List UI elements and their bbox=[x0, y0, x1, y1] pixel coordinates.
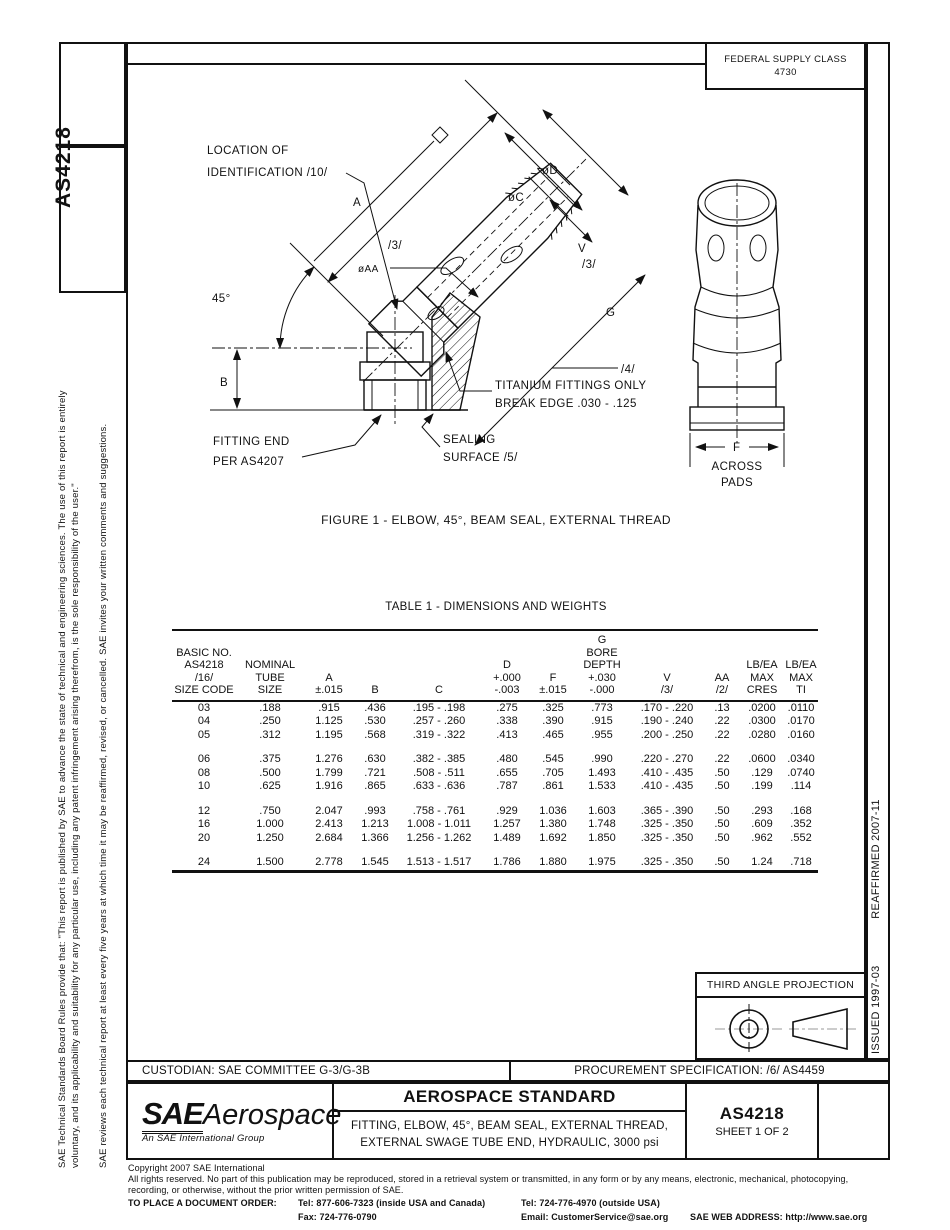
dim-a-label: A bbox=[353, 197, 361, 209]
document-page: FEDERAL SUPPLY CLASS 4730 AS4218 SAE Tec… bbox=[0, 0, 950, 1230]
dia-c-label: øC bbox=[508, 192, 524, 204]
table-cell: 1.880 bbox=[532, 845, 574, 871]
table-cell: .114 bbox=[784, 780, 818, 794]
table-cell: .465 bbox=[532, 729, 574, 743]
flag-3b-label: /3/ bbox=[582, 259, 596, 271]
table-cell: .861 bbox=[532, 780, 574, 794]
table-cell: 08 bbox=[172, 767, 236, 781]
doc-number-text: AS4218 bbox=[720, 1104, 784, 1124]
table-cell: .325 - .350 bbox=[630, 845, 704, 871]
table-cell: .410 - .435 bbox=[630, 780, 704, 794]
table-cell: .250 bbox=[236, 715, 304, 729]
col-header-lbea-cres: LB/EA MAX CRES bbox=[740, 630, 784, 701]
angle-45-label: 45° bbox=[212, 293, 231, 305]
table-cell: .170 - .220 bbox=[630, 701, 704, 716]
across-line1: ACROSS bbox=[712, 461, 763, 473]
reaffirmed-text: REAFFIRMED 2007-11 bbox=[870, 799, 882, 919]
table-row: 201.2502.6841.3661.256 - 1.2621.4891.692… bbox=[172, 832, 818, 846]
table-cell: .500 bbox=[236, 767, 304, 781]
across-line2: PADS bbox=[721, 477, 753, 489]
procurement-text: PROCUREMENT SPECIFICATION: /6/ AS4459 bbox=[511, 1062, 888, 1080]
table-cell: .168 bbox=[784, 794, 818, 819]
fitting-end-line1: FITTING END bbox=[213, 436, 290, 448]
table-cell: .50 bbox=[704, 794, 740, 819]
table-row: 05.3121.195.568.319 - .322.413.465.955.2… bbox=[172, 729, 818, 743]
table-cell: 1.692 bbox=[532, 832, 574, 846]
table-cell: .325 bbox=[532, 701, 574, 716]
sealing-cut-hatch bbox=[432, 293, 480, 410]
table-row: 03.188.915.436.195 - .198.275.325.773.17… bbox=[172, 701, 818, 716]
table-cell: .955 bbox=[574, 729, 630, 743]
table-cell: .0280 bbox=[740, 729, 784, 743]
table-cell: .758 - .761 bbox=[396, 794, 482, 819]
table-title: TABLE 1 - DIMENSIONS AND WEIGHTS bbox=[126, 601, 866, 613]
table-cell: 1.125 bbox=[304, 715, 354, 729]
table-cell: .129 bbox=[740, 767, 784, 781]
col-header-v: V /3/ bbox=[630, 630, 704, 701]
standard-title-line2: EXTERNAL SWAGE TUBE END, HYDRAULIC, 3000… bbox=[334, 1135, 685, 1152]
table-cell: .0340 bbox=[784, 742, 818, 767]
table-cell: 12 bbox=[172, 794, 236, 819]
table-cell: .787 bbox=[482, 780, 532, 794]
table-cell: .50 bbox=[704, 767, 740, 781]
table-cell: .375 bbox=[236, 742, 304, 767]
table-cell: .0300 bbox=[740, 715, 784, 729]
figure1-drawing: 45° B A /3/ LOCATION OF IDENTIFICATION /… bbox=[150, 55, 870, 520]
table-cell: 1.786 bbox=[482, 845, 532, 871]
dia-d-label: øD bbox=[542, 165, 558, 177]
table-cell: .50 bbox=[704, 818, 740, 832]
copyright-line3: recording, or otherwise, without the pri… bbox=[128, 1185, 918, 1196]
table-cell: 1.000 bbox=[236, 818, 304, 832]
location-id-line1: LOCATION OF bbox=[207, 145, 289, 157]
table-cell: .257 - .260 bbox=[396, 715, 482, 729]
sealing-line2: SURFACE /5/ bbox=[443, 452, 518, 464]
col-header-a: A ±.015 bbox=[304, 630, 354, 701]
table-cell: .50 bbox=[704, 845, 740, 871]
table-row: 10.6251.916.865.633 - .636.787.8611.533.… bbox=[172, 780, 818, 794]
table-cell: 1.256 - 1.262 bbox=[396, 832, 482, 846]
table-cell: .0170 bbox=[784, 715, 818, 729]
table-cell: .22 bbox=[704, 715, 740, 729]
col-header-d: D +.000 -.003 bbox=[482, 630, 532, 701]
titanium-line1: TITANIUM FITTINGS ONLY bbox=[495, 380, 646, 392]
table-cell: 1.008 - 1.011 bbox=[396, 818, 482, 832]
dimensions-table: BASIC NO. AS4218 /16/ SIZE CODE NOMINAL … bbox=[172, 629, 818, 873]
standard-title-line1: FITTING, ELBOW, 45°, BEAM SEAL, EXTERNAL… bbox=[334, 1118, 685, 1135]
table-cell: .990 bbox=[574, 742, 630, 767]
table-cell: 1.500 bbox=[236, 845, 304, 871]
table-cell: 1.489 bbox=[482, 832, 532, 846]
table-cell: .480 bbox=[482, 742, 532, 767]
table-cell: 16 bbox=[172, 818, 236, 832]
table-cell: 1.850 bbox=[574, 832, 630, 846]
table-cell: .325 - .350 bbox=[630, 818, 704, 832]
table-cell: .750 bbox=[236, 794, 304, 819]
table-body: 03.188.915.436.195 - .198.275.325.773.17… bbox=[172, 701, 818, 872]
table-cell: .22 bbox=[704, 729, 740, 743]
table-cell: .352 bbox=[784, 818, 818, 832]
fax-number: Fax: 724-776-0790 bbox=[298, 1212, 377, 1223]
table-cell: 1.366 bbox=[354, 832, 396, 846]
table-cell: .568 bbox=[354, 729, 396, 743]
table-cell: .0160 bbox=[784, 729, 818, 743]
sae-logo-tagline: An SAE International Group bbox=[142, 1133, 341, 1144]
table-cell: 1.250 bbox=[236, 832, 304, 846]
copyright-block: Copyright 2007 SAE International All rig… bbox=[128, 1163, 918, 1226]
table-cell: .200 - .250 bbox=[630, 729, 704, 743]
tel-outside: Tel: 724-776-4970 (outside USA) bbox=[521, 1198, 660, 1209]
table-cell: 1.603 bbox=[574, 794, 630, 819]
table-cell: .530 bbox=[354, 715, 396, 729]
table-cell: 10 bbox=[172, 780, 236, 794]
table-cell: .365 - .390 bbox=[630, 794, 704, 819]
table-cell: .275 bbox=[482, 701, 532, 716]
table-cell: 1.975 bbox=[574, 845, 630, 871]
dim-b-label: B bbox=[220, 377, 228, 389]
disclaimer-line2: voluntary, and its applicability and sui… bbox=[69, 306, 82, 1168]
col-header-c: C bbox=[396, 630, 482, 701]
sae-aerospace-logo: SAEAerospace An SAE International Group bbox=[142, 1096, 341, 1144]
table-cell: .962 bbox=[740, 832, 784, 846]
custodian-text: CUSTODIAN: SAE COMMITTEE G-3/G-3B bbox=[128, 1062, 511, 1080]
standard-title-cell: AEROSPACE STANDARD FITTING, ELBOW, 45°, … bbox=[332, 1084, 687, 1158]
dia-aa-label: øAA bbox=[358, 264, 379, 275]
table-row: 12.7502.047.993.758 - .761.9291.0361.603… bbox=[172, 794, 818, 819]
table-cell: .22 bbox=[704, 742, 740, 767]
standard-type-heading: AEROSPACE STANDARD bbox=[334, 1084, 685, 1112]
table-cell: .705 bbox=[532, 767, 574, 781]
table-cell: .655 bbox=[482, 767, 532, 781]
table-cell: .195 - .198 bbox=[396, 701, 482, 716]
table-cell: .865 bbox=[354, 780, 396, 794]
flag-4-label: /4/ bbox=[621, 364, 635, 376]
table-cell: .312 bbox=[236, 729, 304, 743]
doc-number-box: AS4218 bbox=[59, 146, 126, 293]
col-header-g: G BORE DEPTH +.030 -.000 bbox=[574, 630, 630, 701]
table-cell: 1.213 bbox=[354, 818, 396, 832]
disclaimer-line1: SAE Technical Standards Board Rules prov… bbox=[56, 306, 69, 1168]
table-cell: 1.916 bbox=[304, 780, 354, 794]
fitting-end-line2: PER AS4207 bbox=[213, 456, 284, 468]
col-header-f: F ±.015 bbox=[532, 630, 574, 701]
table-cell: .436 bbox=[354, 701, 396, 716]
table-cell: .0110 bbox=[784, 701, 818, 716]
figure-caption: FIGURE 1 - ELBOW, 45°, BEAM SEAL, EXTERN… bbox=[126, 513, 866, 527]
table-cell: .545 bbox=[532, 742, 574, 767]
table-cell: 1.545 bbox=[354, 845, 396, 871]
table-cell: 2.684 bbox=[304, 832, 354, 846]
web-address: SAE WEB ADDRESS: http://www.sae.org bbox=[690, 1212, 867, 1223]
table-cell: 1.24 bbox=[740, 845, 784, 871]
table-cell: .220 - .270 bbox=[630, 742, 704, 767]
table-cell: 1.036 bbox=[532, 794, 574, 819]
disclaimer-text: SAE Technical Standards Board Rules prov… bbox=[56, 306, 82, 1168]
table-cell: 2.047 bbox=[304, 794, 354, 819]
third-angle-projection-title: THIRD ANGLE PROJECTION bbox=[697, 974, 864, 998]
table-cell: 1.195 bbox=[304, 729, 354, 743]
sae-logo-cell: SAEAerospace An SAE International Group bbox=[128, 1084, 332, 1158]
table-cell: 24 bbox=[172, 845, 236, 871]
copyright-line1: Copyright 2007 SAE International bbox=[128, 1163, 918, 1174]
dim-g-label: G bbox=[606, 307, 615, 319]
table-cell: .915 bbox=[304, 701, 354, 716]
side-view: F ACROSS PADS bbox=[690, 180, 784, 489]
table-cell: 04 bbox=[172, 715, 236, 729]
table-cell: .50 bbox=[704, 832, 740, 846]
table-row: 241.5002.7781.5451.513 - 1.5171.7861.880… bbox=[172, 845, 818, 871]
col-header-tube-size: NOMINAL TUBE SIZE bbox=[236, 630, 304, 701]
col-header-size-code: BASIC NO. AS4218 /16/ SIZE CODE bbox=[172, 630, 236, 701]
table-cell: .382 - .385 bbox=[396, 742, 482, 767]
table-cell: .338 bbox=[482, 715, 532, 729]
table-cell: .552 bbox=[784, 832, 818, 846]
titanium-line2: BREAK EDGE .030 - .125 bbox=[495, 398, 637, 410]
table-cell: .915 bbox=[574, 715, 630, 729]
table-cell: .190 - .240 bbox=[630, 715, 704, 729]
copyright-line2: All rights reserved. No part of this pub… bbox=[128, 1174, 918, 1185]
table-cell: 06 bbox=[172, 742, 236, 767]
doc-number-cell: AS4218 SHEET 1 OF 2 bbox=[687, 1084, 819, 1158]
table-cell: .319 - .322 bbox=[396, 729, 482, 743]
col-header-aa: AA /2/ bbox=[704, 630, 740, 701]
table-cell: 1.748 bbox=[574, 818, 630, 832]
col-header-lbea-ti: LB/EA MAX TI bbox=[784, 630, 818, 701]
table-cell: 1.257 bbox=[482, 818, 532, 832]
table-cell: 1.513 - 1.517 bbox=[396, 845, 482, 871]
table-cell: .993 bbox=[354, 794, 396, 819]
table-cell: 1.380 bbox=[532, 818, 574, 832]
table-row: 04.2501.125.530.257 - .260.338.390.915.1… bbox=[172, 715, 818, 729]
custodian-strip: CUSTODIAN: SAE COMMITTEE G-3/G-3B PROCUR… bbox=[126, 1060, 890, 1082]
sae-logo-text: SAE bbox=[142, 1096, 203, 1134]
title-block: SAEAerospace An SAE International Group … bbox=[126, 1082, 890, 1160]
table-cell: .325 - .350 bbox=[630, 832, 704, 846]
table-row: 08.5001.799.721.508 - .511.655.7051.493.… bbox=[172, 767, 818, 781]
table-cell: 2.778 bbox=[304, 845, 354, 871]
table-cell: .410 - .435 bbox=[630, 767, 704, 781]
table-cell: 1.533 bbox=[574, 780, 630, 794]
table-cell: .625 bbox=[236, 780, 304, 794]
sealing-line1: SEALING bbox=[443, 434, 496, 446]
table-cell: .609 bbox=[740, 818, 784, 832]
table-cell: 20 bbox=[172, 832, 236, 846]
table-cell: .188 bbox=[236, 701, 304, 716]
col-header-b: B bbox=[354, 630, 396, 701]
table-cell: .50 bbox=[704, 780, 740, 794]
table-cell: .199 bbox=[740, 780, 784, 794]
issued-text: ISSUED 1997-03 bbox=[870, 965, 882, 1054]
table-cell: .13 bbox=[704, 701, 740, 716]
table-cell: 1.799 bbox=[304, 767, 354, 781]
table-cell: .0600 bbox=[740, 742, 784, 767]
table-cell: 1.493 bbox=[574, 767, 630, 781]
table-cell: .390 bbox=[532, 715, 574, 729]
flag-3a-label: /3/ bbox=[388, 240, 402, 252]
standard-title-text: FITTING, ELBOW, 45°, BEAM SEAL, EXTERNAL… bbox=[334, 1112, 685, 1152]
issue-history: ISSUED 1997-03 REAFFIRMED 2007-11 bbox=[870, 799, 882, 1054]
third-angle-projection-box: THIRD ANGLE PROJECTION bbox=[695, 972, 866, 1060]
table-header-row: BASIC NO. AS4218 /16/ SIZE CODE NOMINAL … bbox=[172, 630, 818, 701]
table-cell: .773 bbox=[574, 701, 630, 716]
order-label: TO PLACE A DOCUMENT ORDER: bbox=[128, 1198, 277, 1209]
table-cell: .293 bbox=[740, 794, 784, 819]
sheet-number-text: SHEET 1 OF 2 bbox=[715, 1126, 788, 1138]
table-cell: .630 bbox=[354, 742, 396, 767]
email-address: Email: CustomerService@sae.org bbox=[521, 1212, 668, 1223]
doc-number-vertical: AS4218 bbox=[52, 126, 76, 208]
table-cell: .413 bbox=[482, 729, 532, 743]
dim-f-label: F bbox=[733, 442, 740, 454]
table-row: 161.0002.4131.2131.008 - 1.0111.2571.380… bbox=[172, 818, 818, 832]
review-note-text: SAE reviews each technical report at lea… bbox=[98, 306, 109, 1168]
dim-v-label: V bbox=[578, 243, 586, 255]
table-cell: .721 bbox=[354, 767, 396, 781]
table-cell: .508 - .511 bbox=[396, 767, 482, 781]
third-angle-projection-symbol bbox=[697, 998, 864, 1058]
table-cell: .718 bbox=[784, 845, 818, 871]
table-cell: .929 bbox=[482, 794, 532, 819]
table-cell: 05 bbox=[172, 729, 236, 743]
table-cell: .633 - .636 bbox=[396, 780, 482, 794]
aerospace-logo-text: Aerospace bbox=[203, 1099, 342, 1131]
tel-inside: Tel: 877-606-7323 (inside USA and Canada… bbox=[298, 1198, 485, 1209]
table-cell: .0200 bbox=[740, 701, 784, 716]
location-id-line2: IDENTIFICATION /10/ bbox=[207, 167, 328, 179]
table-cell: 03 bbox=[172, 701, 236, 716]
table-cell: 1.276 bbox=[304, 742, 354, 767]
table-cell: .0740 bbox=[784, 767, 818, 781]
table-row: 06.3751.276.630.382 - .385.480.545.990.2… bbox=[172, 742, 818, 767]
table-cell: 2.413 bbox=[304, 818, 354, 832]
